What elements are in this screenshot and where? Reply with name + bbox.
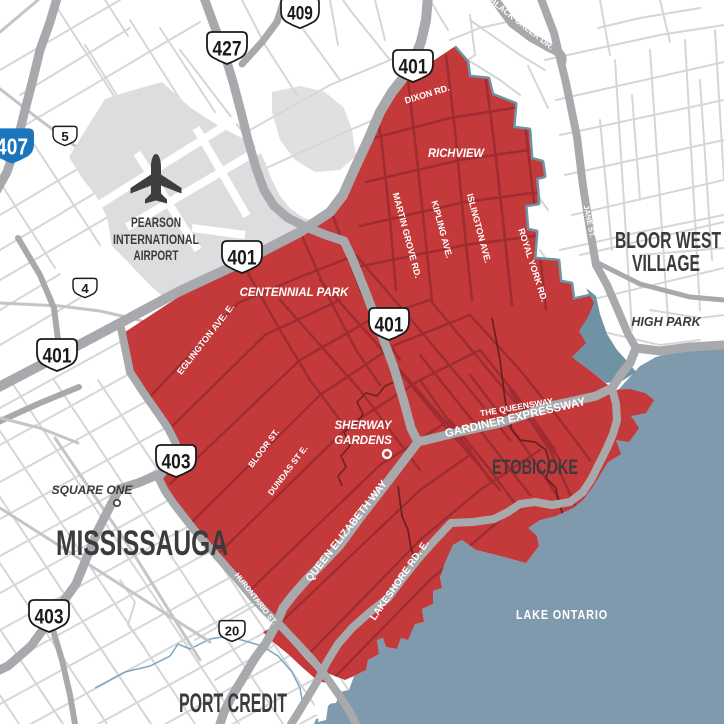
svg-text:VILLAGE: VILLAGE xyxy=(632,250,700,276)
svg-text:HIGH PARK: HIGH PARK xyxy=(631,315,701,329)
svg-text:427: 427 xyxy=(213,37,242,61)
svg-text:407: 407 xyxy=(0,133,28,159)
svg-text:4: 4 xyxy=(81,281,89,296)
svg-text:SQUARE ONE: SQUARE ONE xyxy=(52,483,134,497)
svg-text:AIRPORT: AIRPORT xyxy=(134,248,180,263)
svg-text:PORT CREDIT: PORT CREDIT xyxy=(179,688,287,718)
svg-text:403: 403 xyxy=(162,450,191,474)
svg-text:403: 403 xyxy=(35,605,64,629)
svg-text:SHERWAY: SHERWAY xyxy=(334,420,392,432)
svg-text:401: 401 xyxy=(375,313,404,337)
svg-text:401: 401 xyxy=(399,55,428,79)
svg-text:ETOBICOKE: ETOBICOKE xyxy=(492,456,578,479)
svg-text:GARDENS: GARDENS xyxy=(334,435,392,447)
svg-text:MISSISSAUGA: MISSISSAUGA xyxy=(56,524,228,563)
svg-text:LAKE ONTARIO: LAKE ONTARIO xyxy=(516,608,608,622)
svg-text:5: 5 xyxy=(61,129,68,144)
svg-text:INTERNATIONAL: INTERNATIONAL xyxy=(113,232,199,247)
svg-text:RICHVIEW: RICHVIEW xyxy=(428,146,486,160)
svg-text:409: 409 xyxy=(287,4,313,25)
svg-text:PEARSON: PEARSON xyxy=(131,215,181,230)
svg-text:401: 401 xyxy=(228,246,257,270)
svg-text:20: 20 xyxy=(225,624,239,639)
svg-text:CENTENNIAL PARK: CENTENNIAL PARK xyxy=(240,287,350,299)
svg-text:401: 401 xyxy=(43,344,72,368)
